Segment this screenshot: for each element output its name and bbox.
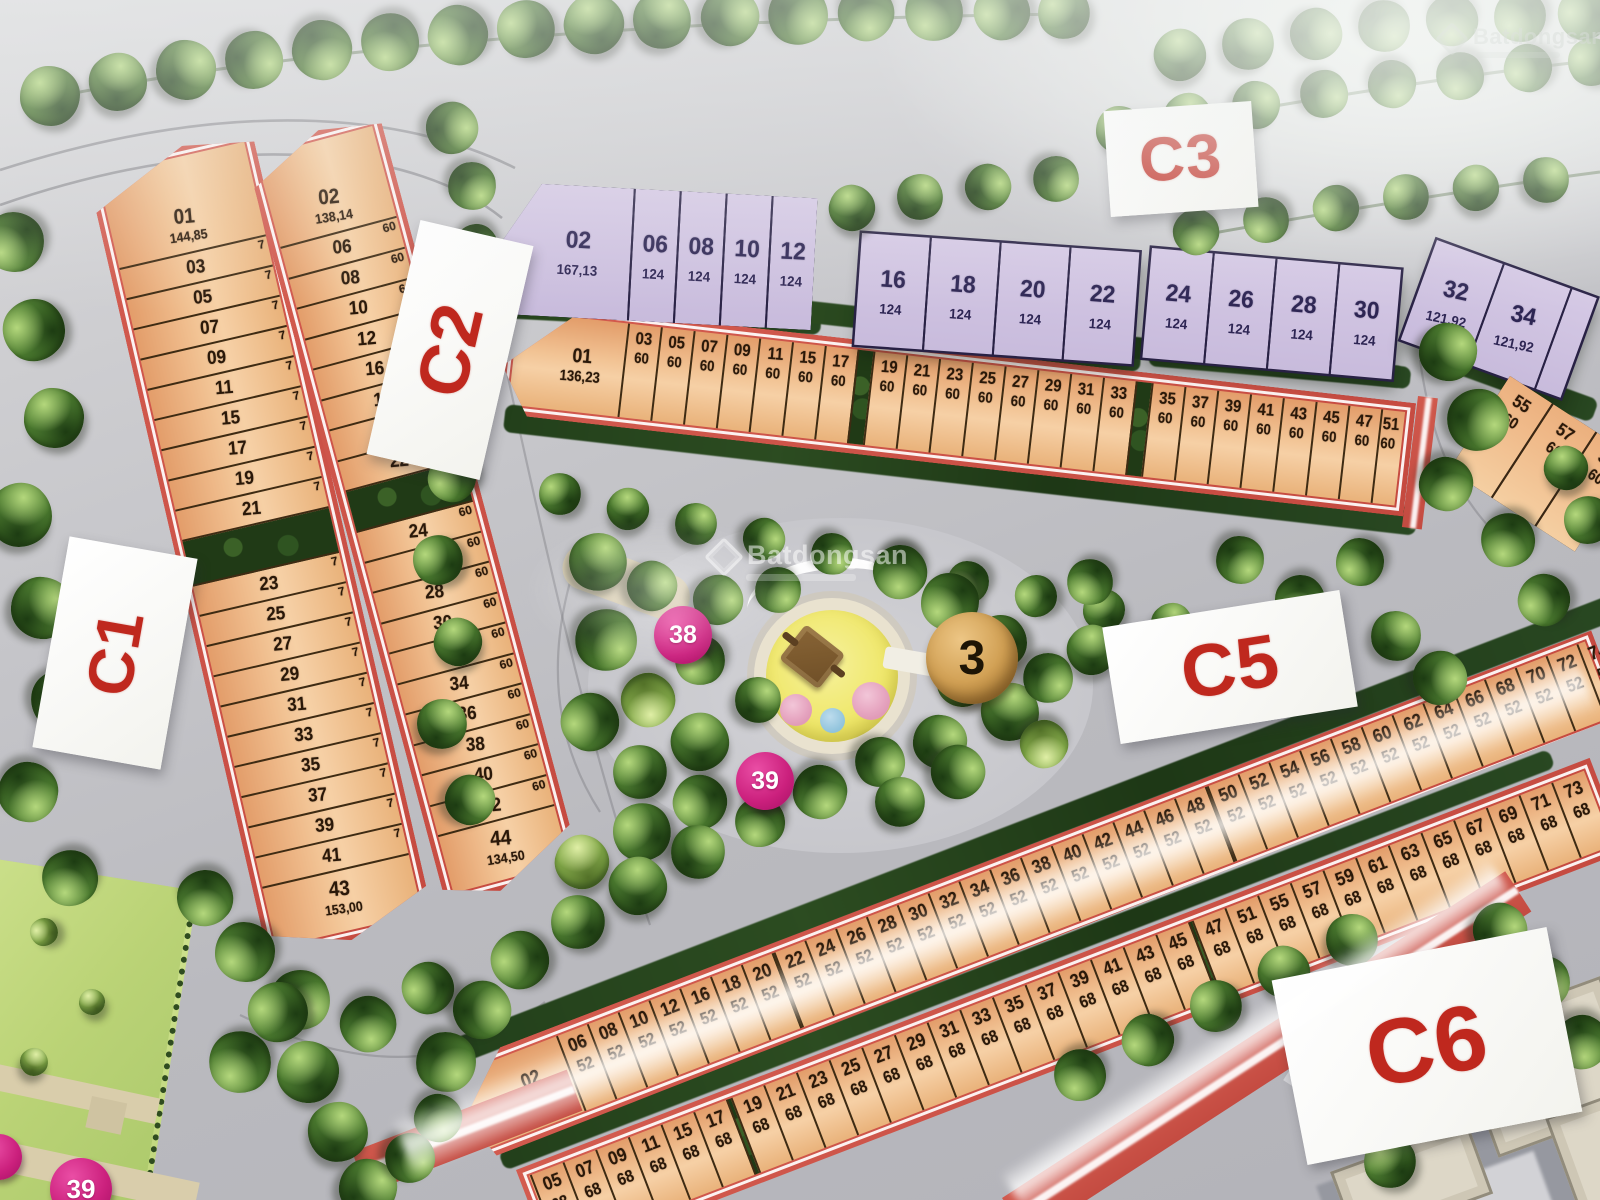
lot-number: 67 xyxy=(1464,816,1488,840)
badge-3-number: 3 xyxy=(959,631,986,686)
lot-area: 60 xyxy=(1109,405,1125,421)
lot-number: 47 xyxy=(1355,412,1373,430)
lot-number: 70 xyxy=(1524,664,1548,688)
block-label-c3: C3 xyxy=(1103,101,1258,217)
lot-number: 57 xyxy=(1300,878,1324,902)
lot-area: 7 xyxy=(372,736,381,749)
lot-area: 124 xyxy=(879,300,902,318)
lot-area: 7 xyxy=(358,675,367,688)
lot-area: 60 xyxy=(699,358,715,374)
lot-area: 7 xyxy=(278,329,287,342)
lot-number: 42 xyxy=(1091,830,1115,854)
lot-area: 68 xyxy=(880,1065,902,1087)
lot-number: 44 xyxy=(1122,818,1146,842)
lot-number: 20 xyxy=(750,961,774,985)
lot-number: 32 xyxy=(937,889,961,913)
lot-number: 01 xyxy=(173,205,196,228)
lot-area: 60 xyxy=(978,390,994,406)
lot-area: 60 xyxy=(1321,429,1337,445)
lot-number: 12 xyxy=(357,329,378,350)
lot-area: 60 xyxy=(1010,394,1026,410)
lot-area: 60 xyxy=(1289,425,1305,441)
block-label-c3-text: C3 xyxy=(1137,125,1224,193)
lot-number: 28 xyxy=(1290,290,1318,320)
lot-area: 60 xyxy=(1076,401,1092,417)
lot-area: 52 xyxy=(1008,887,1030,909)
lot-area: 60 xyxy=(465,534,481,549)
lot-number: 06 xyxy=(642,230,669,259)
lot-number: 43 xyxy=(328,878,351,901)
lot-number: 11 xyxy=(214,378,234,399)
lot-number: 45 xyxy=(1323,408,1341,426)
lot-number: 66 xyxy=(1463,687,1487,711)
lot-number: 68 xyxy=(1493,675,1517,699)
lot-area: 52 xyxy=(1039,875,1061,897)
lot-number: 35 xyxy=(1159,389,1177,407)
lot-area: 52 xyxy=(915,923,937,945)
lot-number: 26 xyxy=(1227,284,1255,314)
lot-area: 52 xyxy=(1256,792,1278,814)
lot-area: 60 xyxy=(831,373,847,389)
lot-number: 22 xyxy=(1089,280,1116,310)
lot-area: 52 xyxy=(1379,744,1401,766)
lot-area: 68 xyxy=(946,1040,968,1062)
lot-area: 124 xyxy=(642,265,665,282)
lot-number: 51 xyxy=(1382,415,1400,433)
lot-number: 59 xyxy=(1333,866,1357,890)
lot-area: 134,50 xyxy=(486,848,526,867)
lot-area: 60 xyxy=(1256,422,1272,438)
lot-number: 62 xyxy=(1401,711,1425,735)
lot-area: 68 xyxy=(1277,913,1299,935)
lot-number: 39 xyxy=(1067,968,1091,992)
lot-area: 68 xyxy=(615,1167,637,1189)
lot-area: 68 xyxy=(680,1142,702,1164)
lot-number: 37 xyxy=(308,785,329,806)
lot-number: 07 xyxy=(200,317,221,338)
lot-area: 60 xyxy=(1190,414,1206,430)
lot-number: 37 xyxy=(1035,980,1059,1004)
lot-number: 55 xyxy=(1267,891,1291,915)
lot-number: 32 xyxy=(1440,275,1471,308)
lot-area: 52 xyxy=(729,994,751,1016)
lot-area: 52 xyxy=(1131,840,1153,862)
lot-area: 68 xyxy=(1175,952,1197,974)
lot-c3-g3-30: 30124 xyxy=(1329,264,1401,379)
lot-number: 56 xyxy=(1309,746,1333,770)
lot-number: 05 xyxy=(668,334,686,352)
lot-area: 52 xyxy=(1441,721,1463,743)
lot-c3-g1-06: 06124 xyxy=(627,189,680,323)
lot-number: 69 xyxy=(1496,803,1520,827)
lot-area: 60 xyxy=(667,354,683,370)
lot-number: 02 xyxy=(318,185,341,208)
lot-number: 08 xyxy=(596,1020,620,1044)
lot-area: 7 xyxy=(337,585,346,598)
lot-number: 52 xyxy=(1247,770,1271,794)
lot-number: 05 xyxy=(541,1170,565,1194)
lot-number: 17 xyxy=(228,438,249,459)
lot-number: 16 xyxy=(879,265,906,295)
lot-number: 55 xyxy=(1509,392,1534,417)
lot-area: 7 xyxy=(379,766,388,779)
lot-area: 68 xyxy=(1044,1002,1066,1024)
tree-icon xyxy=(20,66,80,126)
lot-number: 27 xyxy=(273,634,294,655)
lot-area: 60 xyxy=(879,379,895,395)
lot-area: 7 xyxy=(393,826,402,839)
lot-number: 36 xyxy=(999,865,1023,889)
lot-number: 07 xyxy=(573,1157,597,1181)
lot-number: 10 xyxy=(733,235,760,264)
lot-c3-g2-20: 20124 xyxy=(992,243,1070,360)
lot-area: 68 xyxy=(1211,938,1233,960)
lot-c3-g3-24: 24124 xyxy=(1142,248,1212,363)
lot-area: 52 xyxy=(792,970,814,992)
lot-number: 33 xyxy=(969,1005,993,1029)
lot-area: 68 xyxy=(1077,990,1099,1012)
lot-number: 21 xyxy=(913,361,931,379)
lot-number: 41 xyxy=(322,845,343,866)
lot-area: 7 xyxy=(299,419,308,432)
lot-area: 60 xyxy=(381,220,397,235)
lot-number: 17 xyxy=(832,352,850,370)
lot-area: 60 xyxy=(498,656,514,671)
lot-number: 65 xyxy=(1431,828,1455,852)
lot-area: 60 xyxy=(798,369,814,385)
lot-number: 37 xyxy=(1191,393,1209,411)
lot-area: 52 xyxy=(1225,804,1247,826)
lot-area: 60 xyxy=(474,564,490,579)
lot-area: 124 xyxy=(780,272,803,289)
lot-area: 167,13 xyxy=(556,260,597,278)
lot-number: 19 xyxy=(880,358,898,376)
lot-number: 31 xyxy=(937,1018,961,1042)
lot-number: 21 xyxy=(773,1081,797,1105)
lot-number: 15 xyxy=(221,408,242,429)
lot-number: 47 xyxy=(1202,916,1226,940)
lot-number: 09 xyxy=(733,341,751,359)
lot-number: 73 xyxy=(1562,778,1586,802)
lot-area: 7 xyxy=(313,480,322,493)
lot-number: 34 xyxy=(449,673,470,694)
lot-number: 24 xyxy=(814,936,838,960)
lot-number: 21 xyxy=(242,499,263,520)
lot-number: 63 xyxy=(1398,841,1422,865)
lot-area: 52 xyxy=(1472,709,1494,731)
lot-number: 48 xyxy=(1183,794,1207,818)
lot-number: 33 xyxy=(294,725,315,746)
badge-39: 39 xyxy=(736,752,794,810)
lot-area: 153,00 xyxy=(324,899,364,918)
lot-area: 124 xyxy=(1089,315,1112,333)
lot-area: 52 xyxy=(1162,828,1184,850)
lot-c3-g3-28: 28124 xyxy=(1266,259,1338,374)
c3-g2: 16124181242012422124 xyxy=(854,233,1139,364)
lot-area: 68 xyxy=(1538,812,1560,834)
lot-area: 52 xyxy=(1069,863,1091,885)
lot-area: 68 xyxy=(1342,888,1364,910)
lot-area: 7 xyxy=(257,238,266,251)
lot-number: 03 xyxy=(635,330,653,348)
lot-area: 68 xyxy=(1505,825,1527,847)
lot-area: 7 xyxy=(285,359,294,372)
lot-area: 52 xyxy=(1193,816,1215,838)
lot-area: 52 xyxy=(1564,673,1586,695)
c3-g3: 24124261242812430124 xyxy=(1142,248,1401,379)
lot-area: 52 xyxy=(575,1053,597,1075)
lot-area: 68 xyxy=(713,1129,735,1151)
lot-area: 52 xyxy=(1503,697,1525,719)
lot-number: 30 xyxy=(1353,295,1381,325)
lot-number: 12 xyxy=(658,996,682,1020)
lot-area: 68 xyxy=(1440,850,1462,872)
lot-area: 60 xyxy=(912,382,928,398)
lot-number: 10 xyxy=(627,1008,651,1032)
lot-number: 61 xyxy=(1365,853,1389,877)
lot-area: 52 xyxy=(1595,662,1600,684)
lot-number: 20 xyxy=(1019,275,1046,305)
lot-number: 23 xyxy=(946,365,964,383)
lot-area: 7 xyxy=(292,389,301,402)
lot-number: 17 xyxy=(704,1107,728,1131)
lot-area: 60 xyxy=(634,351,650,367)
lot-area: 60 xyxy=(1354,433,1370,449)
lot-number: 57 xyxy=(1553,420,1578,445)
watermark-logo-icon xyxy=(1435,22,1469,56)
lot-number: 16 xyxy=(689,984,713,1008)
lot-area: 52 xyxy=(1349,756,1371,778)
lot-area: 68 xyxy=(1407,863,1429,885)
lot-area: 68 xyxy=(1375,875,1397,897)
watermark-corner: Batdongsan xyxy=(1440,24,1600,51)
lot-number: 29 xyxy=(1044,376,1062,394)
lot-number: 71 xyxy=(1529,791,1553,815)
lot-number: 50 xyxy=(1216,782,1240,806)
lot-area: 60 xyxy=(1380,436,1396,452)
lot-area: 60 xyxy=(765,366,781,382)
lot-number: 29 xyxy=(904,1030,928,1054)
lot-number: 09 xyxy=(606,1145,630,1169)
watermark-brand: Batdongsan xyxy=(747,540,908,571)
lot-area: 52 xyxy=(759,982,781,1004)
lot-number: 01 xyxy=(572,346,593,367)
lot-number: 25 xyxy=(266,604,287,625)
lot-area: 60 xyxy=(1157,410,1173,426)
lot-c3-g3-26: 26124 xyxy=(1203,253,1275,368)
lot-area: 60 xyxy=(945,386,961,402)
lot-area: 52 xyxy=(977,899,999,921)
lot-area: 7 xyxy=(271,298,280,311)
badge-3: 3 xyxy=(926,612,1018,704)
lot-number: 23 xyxy=(806,1068,830,1092)
lot-area: 52 xyxy=(1533,685,1555,707)
lot-number: 25 xyxy=(979,369,997,387)
lot-number: 27 xyxy=(871,1043,895,1067)
lot-number: 24 xyxy=(1165,279,1193,309)
lot-area: 52 xyxy=(946,911,968,933)
block-label-c1-text: C1 xyxy=(76,605,154,700)
lot-area: 68 xyxy=(848,1077,870,1099)
lot-area: 52 xyxy=(1318,768,1340,790)
lot-number: 08 xyxy=(340,268,361,289)
lot-area: 60 xyxy=(531,777,547,792)
lot-area: 52 xyxy=(1410,733,1432,755)
lot-area: 52 xyxy=(1287,780,1309,802)
lot-number: 54 xyxy=(1278,758,1302,782)
watermark-brand: Batdongsan xyxy=(1473,24,1600,50)
lot-area: 7 xyxy=(330,555,339,568)
lot-number: 15 xyxy=(671,1120,695,1144)
lot-number: 30 xyxy=(906,901,930,925)
lot-area: 68 xyxy=(750,1115,772,1137)
lot-number: 43 xyxy=(1133,943,1157,967)
lot-area: 124 xyxy=(1164,314,1188,332)
lot-number: 34 xyxy=(1508,299,1539,332)
lot-area: 60 xyxy=(1223,418,1239,434)
lot-number: 06 xyxy=(332,237,353,258)
lot-area: 68 xyxy=(1244,925,1266,947)
badge-38: 38 xyxy=(654,606,712,664)
lot-area: 52 xyxy=(854,946,876,968)
watermark-logo-icon xyxy=(704,537,744,577)
lot-area: 68 xyxy=(648,1154,670,1176)
lot-number: 03 xyxy=(186,257,207,278)
lot-area: 52 xyxy=(885,934,907,956)
lot-number: 35 xyxy=(1002,993,1026,1017)
lot-number: 43 xyxy=(1290,404,1308,422)
lot-number: 25 xyxy=(839,1056,863,1080)
lot-number: 27 xyxy=(1012,373,1030,391)
lot-number: 02 xyxy=(565,226,592,255)
lot-number: 51 xyxy=(1235,903,1259,927)
lot-area: 60 xyxy=(732,362,748,378)
lot-area: 68 xyxy=(913,1052,935,1074)
lot-number: 06 xyxy=(565,1032,589,1056)
lot-area: 124 xyxy=(688,267,711,284)
lot-number: 26 xyxy=(845,924,869,948)
lot-area: 68 xyxy=(782,1102,804,1124)
lot-area: 52 xyxy=(1100,852,1122,874)
lot-area: 7 xyxy=(306,449,315,462)
badge-39-number: 39 xyxy=(751,767,779,796)
block-label-c6-text: C6 xyxy=(1358,989,1495,1103)
lot-number: 05 xyxy=(193,287,214,308)
lot-number: 19 xyxy=(741,1093,765,1117)
play-pad-icon xyxy=(852,682,890,720)
lot-number: 23 xyxy=(259,574,280,595)
badge-38-number: 38 xyxy=(669,621,697,650)
lot-number: 31 xyxy=(287,694,308,715)
lot-number: 60 xyxy=(1370,723,1394,747)
lot-number: 31 xyxy=(1077,380,1095,398)
lot-c3-g1-10: 10124 xyxy=(719,194,772,328)
lot-number: 28 xyxy=(875,913,899,937)
c3-g1: 02167,1306124081241012412124 xyxy=(499,182,817,330)
lot-number: 38 xyxy=(465,734,486,755)
tree-icon xyxy=(214,921,275,982)
lot-area: 68 xyxy=(1142,964,1164,986)
lot-number: 12 xyxy=(779,237,806,266)
lot-c3-g2-22: 22124 xyxy=(1062,248,1140,365)
lot-number: 08 xyxy=(687,232,714,261)
lot-number: 29 xyxy=(280,664,301,685)
watermark-tagline-bar xyxy=(1476,52,1560,58)
lot-area: 7 xyxy=(365,706,374,719)
lot-number: 11 xyxy=(639,1133,662,1157)
lot-area: 52 xyxy=(605,1042,627,1064)
lot-number: 34 xyxy=(968,877,992,901)
lot-area: 68 xyxy=(815,1090,837,1112)
lot-area: 144,85 xyxy=(169,226,209,245)
lot-number: 41 xyxy=(1100,955,1124,979)
lot-area: 60 xyxy=(457,504,473,519)
lot-number: 18 xyxy=(949,270,976,300)
lot-area: 68 xyxy=(1473,838,1495,860)
lot-area: 60 xyxy=(490,625,506,640)
block-label-c2-text: C2 xyxy=(405,297,494,404)
badge-39-partial-number: 39 xyxy=(67,1174,96,1200)
lot-area: 52 xyxy=(636,1030,658,1052)
lot-area: 60 xyxy=(506,686,522,701)
lot-area: 7 xyxy=(351,645,360,658)
lot-number: 72 xyxy=(1555,652,1579,676)
lot-area: 124 xyxy=(734,270,757,287)
lot-area: 52 xyxy=(823,958,845,980)
watermark: Batdongsan xyxy=(710,540,908,571)
lot-area: 68 xyxy=(1309,900,1331,922)
lot-area: 68 xyxy=(1109,977,1131,999)
lot-area: 124 xyxy=(1019,310,1042,328)
lot-area: 52 xyxy=(667,1018,689,1040)
lot-area: 60 xyxy=(523,747,539,762)
lot-number: 33 xyxy=(1110,384,1128,402)
site-plan-canvas: C1 C2 C3 C5 C6 38 3 39 39 Batdongsan Bat… xyxy=(0,0,1600,1200)
lot-number: 46 xyxy=(1153,806,1177,830)
lot-number: 19 xyxy=(235,468,256,489)
lot-area: 7 xyxy=(386,796,395,809)
lot-area: 68 xyxy=(582,1179,604,1200)
lot-c3-g1-08: 08124 xyxy=(673,191,726,325)
lot-number: 41 xyxy=(1257,401,1275,419)
play-pad-icon xyxy=(780,694,812,726)
lot-c3-g2-16: 16124 xyxy=(854,233,930,349)
play-pad-icon xyxy=(820,708,845,733)
lot-area: 7 xyxy=(264,268,273,281)
lot-number: 44 xyxy=(490,827,513,850)
lot-number: 15 xyxy=(799,348,817,366)
lot-area: 60 xyxy=(1043,397,1059,413)
lot-c3-g2-18: 18124 xyxy=(922,238,1000,355)
lot-c3-g1-12: 12124 xyxy=(765,196,818,330)
lot-area: 68 xyxy=(1571,800,1593,822)
lot-number: 18 xyxy=(719,972,743,996)
watermark-tagline-bar xyxy=(746,574,856,581)
lot-area: 124 xyxy=(1290,325,1314,343)
lot-area: 60 xyxy=(482,595,498,610)
lot-area: 68 xyxy=(1011,1015,1033,1037)
lot-area: 7 xyxy=(344,615,353,628)
lot-number: 45 xyxy=(1165,930,1189,954)
lot-number: 11 xyxy=(767,345,784,363)
lot-number: 58 xyxy=(1339,734,1363,758)
lot-number: 09 xyxy=(207,348,228,369)
lot-area: 124 xyxy=(949,305,972,323)
lot-area: 60 xyxy=(389,250,405,265)
lot-area: 60 xyxy=(514,716,530,731)
lot-number: 39 xyxy=(1224,397,1242,415)
lot-area: 124 xyxy=(1227,319,1251,337)
